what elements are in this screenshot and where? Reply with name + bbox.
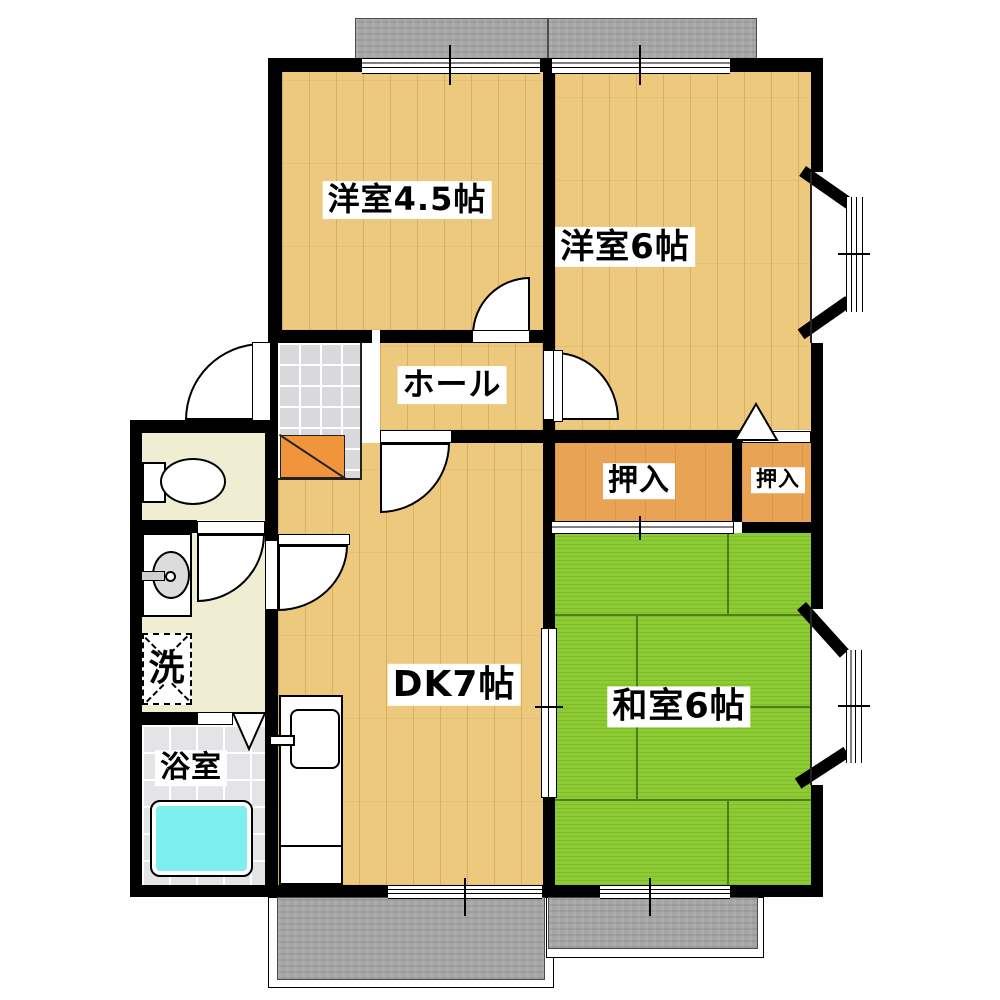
wall xyxy=(540,58,552,72)
wall xyxy=(265,433,278,540)
wall xyxy=(130,885,388,897)
tatami-mat-line xyxy=(555,614,811,616)
entry-tile-edge-line xyxy=(360,343,362,480)
wall xyxy=(811,72,823,172)
window-center-tick xyxy=(449,45,451,85)
floor-plan: 洋室4.5帖 洋室6帖 ホール 押入 押入 DK7帖 和室6帖 洗 浴室 xyxy=(0,0,1000,1000)
wall xyxy=(130,420,278,433)
sliding-door-tick xyxy=(639,516,641,540)
window-center-tick xyxy=(639,45,641,85)
wall xyxy=(142,712,197,725)
room-label-closet-large: 押入 xyxy=(603,463,675,499)
sliding-door-tick xyxy=(535,706,563,708)
wall xyxy=(811,785,823,897)
kitchen-sink xyxy=(290,709,340,769)
entry-door-leaf xyxy=(252,342,271,421)
wall xyxy=(142,520,197,533)
window-center-tick xyxy=(649,878,651,916)
window-center-tick xyxy=(838,253,870,255)
wall xyxy=(380,330,472,343)
window xyxy=(362,58,540,74)
wall xyxy=(742,522,811,533)
wall xyxy=(130,420,142,897)
wall xyxy=(732,443,742,522)
washbasin-faucet xyxy=(141,571,165,581)
room-label-western-4-5: 洋室4.5帖 xyxy=(323,181,492,219)
room-label-dk: DK7帖 xyxy=(388,664,521,706)
door-opening xyxy=(472,330,530,343)
window-center-tick xyxy=(464,878,466,916)
door-opening xyxy=(380,430,452,443)
room-label-japanese-6: 和室6帖 xyxy=(607,686,750,727)
toilet-bowl xyxy=(160,458,226,505)
bay-floor-edge xyxy=(810,172,812,343)
tatami-mat-line xyxy=(555,799,811,801)
kitchen-faucet xyxy=(269,735,295,746)
entry-step-edge xyxy=(362,343,380,440)
entry-door-swing-arc xyxy=(185,343,262,420)
balcony-top-right xyxy=(548,18,757,60)
door-opening xyxy=(197,712,233,725)
door-leaf xyxy=(197,521,265,534)
room-label-bathroom: 浴室 xyxy=(155,750,227,786)
bathtub xyxy=(150,800,253,877)
entry-bottom-line xyxy=(278,478,360,480)
door-leaf xyxy=(553,350,563,422)
balcony-top-left xyxy=(355,18,548,60)
tatami-mat-line xyxy=(727,799,729,885)
wall xyxy=(268,58,282,343)
folding-door-icon xyxy=(733,402,779,442)
wall xyxy=(730,58,823,72)
wall xyxy=(730,885,823,897)
balcony-bottom-left xyxy=(277,897,545,980)
room-label-laundry: 洗 xyxy=(148,649,185,689)
window-center-tick xyxy=(838,705,870,707)
room-label-western-6: 洋室6帖 xyxy=(555,227,695,267)
window xyxy=(552,58,730,74)
tatami-mat-line xyxy=(727,533,729,614)
wall xyxy=(452,430,543,443)
wall xyxy=(542,885,600,897)
sliding-door xyxy=(541,628,557,798)
door-opening xyxy=(265,540,278,610)
kitchen-counter-divider xyxy=(279,845,343,847)
wall xyxy=(543,72,555,350)
folding-door-icon xyxy=(231,711,267,751)
wall xyxy=(811,343,823,609)
room-label-closet-small: 押入 xyxy=(751,467,805,493)
washbasin-knob xyxy=(165,571,176,582)
bay-floor-edge xyxy=(810,609,812,785)
sliding-door xyxy=(551,521,734,534)
room-label-hall: ホール xyxy=(397,366,506,404)
door-leaf xyxy=(278,534,350,545)
window xyxy=(600,885,730,899)
wall xyxy=(543,430,742,443)
wall xyxy=(268,58,362,72)
balcony-bottom-right xyxy=(548,897,758,949)
wall xyxy=(543,798,555,885)
wall xyxy=(268,330,372,343)
